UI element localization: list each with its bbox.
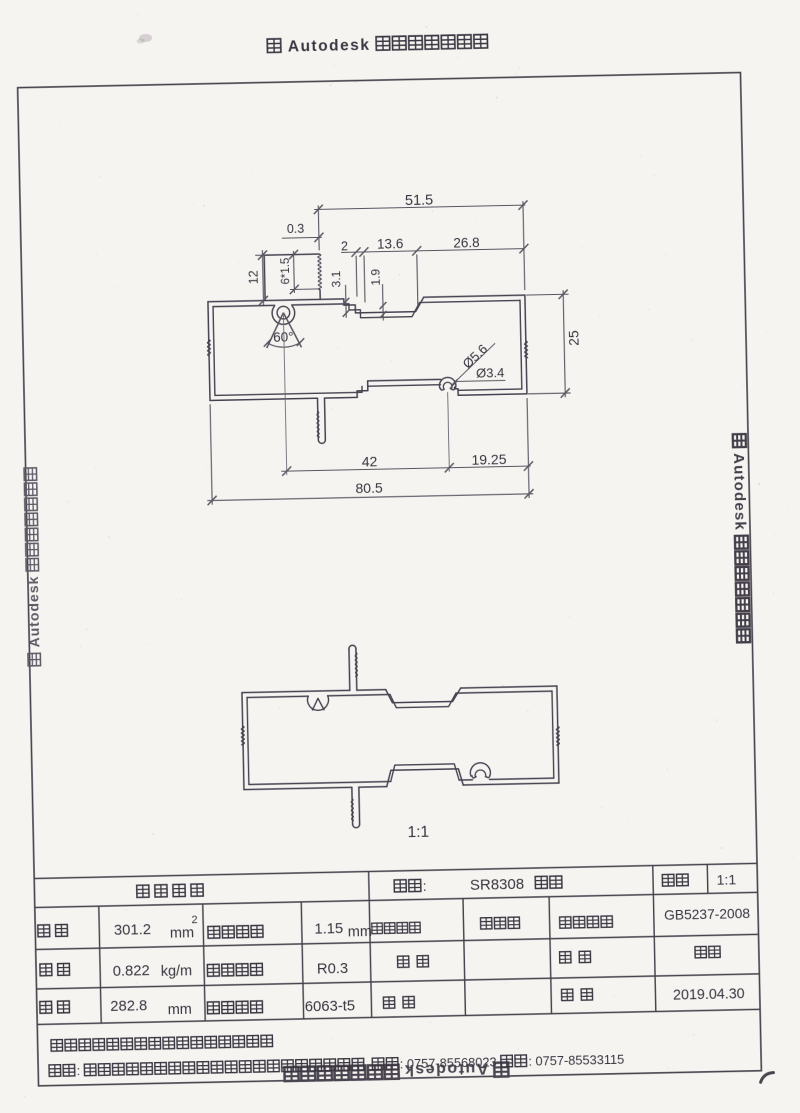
svg-text:2: 2 [341,239,348,253]
svg-text:19.25: 19.25 [471,451,507,468]
svg-text:Autodesk: Autodesk [288,37,371,56]
svg-text:26.8: 26.8 [453,235,480,251]
svg-text:80.5: 80.5 [355,480,383,497]
svg-text:2019.04.30: 2019.04.30 [673,986,745,1003]
svg-text:0.822: 0.822 [113,963,150,980]
svg-text:6*1.5: 6*1.5 [280,258,293,285]
svg-text:: 0757-85533115: : 0757-85533115 [528,1052,624,1069]
svg-text:mm: mm [170,925,195,942]
svg-text:1:1: 1:1 [407,824,429,841]
svg-text:: 0757-85568023: : 0757-85568023 [400,1054,497,1071]
svg-text:mm: mm [348,924,373,941]
svg-text:6063-t5: 6063-t5 [305,999,356,1016]
svg-text:282.8: 282.8 [110,998,147,1015]
svg-text:51.5: 51.5 [405,193,434,210]
svg-text::: : [76,1063,80,1078]
svg-text:1.15: 1.15 [314,921,343,938]
svg-text:25: 25 [565,330,581,346]
svg-text:3.1: 3.1 [329,270,343,287]
svg-text:Ø3.4: Ø3.4 [476,365,504,381]
svg-text:0.3: 0.3 [287,222,305,236]
svg-text:1:1: 1:1 [716,871,736,887]
svg-text:42: 42 [362,453,378,469]
svg-text:mm: mm [168,1002,193,1019]
svg-text:R0.3: R0.3 [317,961,349,978]
svg-text:2: 2 [191,914,197,926]
svg-text:Autodesk: Autodesk [730,453,749,531]
svg-text:GB5237-2008: GB5237-2008 [664,906,751,923]
svg-text:12: 12 [247,270,261,284]
svg-text:1.9: 1.9 [369,268,383,285]
svg-text:SR8308: SR8308 [470,876,525,894]
svg-text::: : [423,878,427,894]
svg-text:301.2: 301.2 [114,922,151,939]
svg-text:Autodesk: Autodesk [25,576,43,648]
svg-text:13.6: 13.6 [377,236,404,252]
svg-text:kg/m: kg/m [161,963,193,980]
